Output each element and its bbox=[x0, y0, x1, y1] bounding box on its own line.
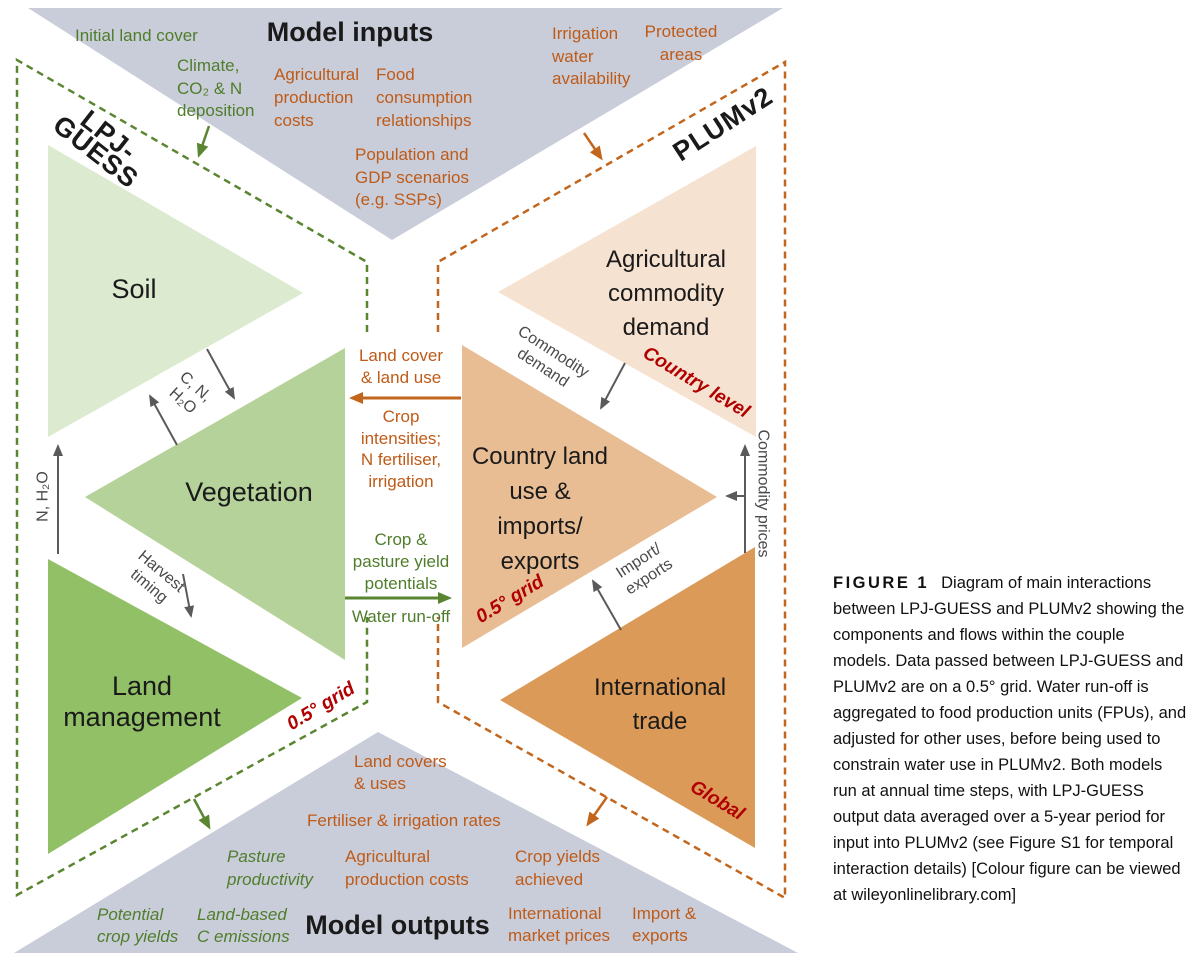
output-land-covers-uses: Land covers & uses bbox=[354, 751, 447, 795]
arrow-lpj-outputs bbox=[194, 799, 209, 827]
component-vegetation: Vegetation bbox=[164, 477, 334, 508]
flow-land-cover-land-use: Land cover & land use bbox=[336, 345, 466, 389]
figure-page: Model inputs Model outputs LPJ-GUESS PLU… bbox=[0, 0, 1193, 969]
input-initial-land-cover: Initial land cover bbox=[75, 25, 198, 46]
input-irrigation-water-availability: Irrigation water availability bbox=[552, 23, 630, 91]
flow-crop-intensities: Crop intensities; N fertiliser, irrigati… bbox=[336, 406, 466, 492]
figure-caption: FIGURE 1Diagram of main interactions bet… bbox=[833, 570, 1187, 908]
input-climate-co2-n-deposition: Climate, CO₂ & N deposition bbox=[177, 55, 255, 123]
model-inputs-title: Model inputs bbox=[260, 17, 440, 48]
flow-crop-pasture-yield-potentials: Crop & pasture yield potentials bbox=[336, 529, 466, 595]
input-food-consumption-relationships: Food consumption relationships bbox=[376, 63, 472, 132]
arrow-plum-inputs bbox=[584, 133, 601, 158]
component-land-management: Land management bbox=[42, 671, 242, 733]
input-protected-areas: Protected areas bbox=[640, 21, 722, 66]
caption-tag: FIGURE 1 bbox=[833, 574, 929, 592]
flow-n-h2o: N, H₂O bbox=[34, 462, 53, 532]
input-population-gdp-scenarios: Population and GDP scenarios (e.g. SSPs) bbox=[355, 144, 469, 212]
component-agricultural-commodity-demand: Agricultural commodity demand bbox=[576, 243, 756, 345]
output-international-market-prices: International market prices bbox=[508, 903, 610, 946]
output-pasture-productivity: Pasture productivity bbox=[227, 845, 313, 891]
flow-water-runoff: Water run-off bbox=[336, 606, 466, 627]
component-country-land-use: Country land use & imports/ exports bbox=[455, 439, 625, 579]
output-crop-yields-achieved: Crop yields achieved bbox=[515, 845, 600, 891]
output-land-based-c-emissions: Land-based C emissions bbox=[197, 904, 290, 947]
component-international-trade: International trade bbox=[575, 671, 745, 739]
output-fertiliser-irrigation-rates: Fertiliser & irrigation rates bbox=[307, 810, 501, 831]
model-outputs-title: Model outputs bbox=[300, 910, 495, 941]
arrow-commodity-demand bbox=[601, 363, 625, 408]
arrow-lpj-inputs bbox=[199, 126, 209, 155]
output-import-exports: Import & exports bbox=[632, 903, 696, 946]
output-potential-crop-yields: Potential crop yields bbox=[97, 904, 178, 947]
input-agricultural-production-costs: Agricultural production costs bbox=[274, 63, 359, 132]
component-soil: Soil bbox=[84, 274, 184, 305]
caption-body: Diagram of main interactions between LPJ… bbox=[833, 574, 1186, 904]
arrow-plum-outputs bbox=[588, 797, 607, 824]
output-agricultural-production-costs: Agricultural production costs bbox=[345, 845, 469, 891]
flow-commodity-prices: Commodity prices bbox=[754, 424, 773, 564]
